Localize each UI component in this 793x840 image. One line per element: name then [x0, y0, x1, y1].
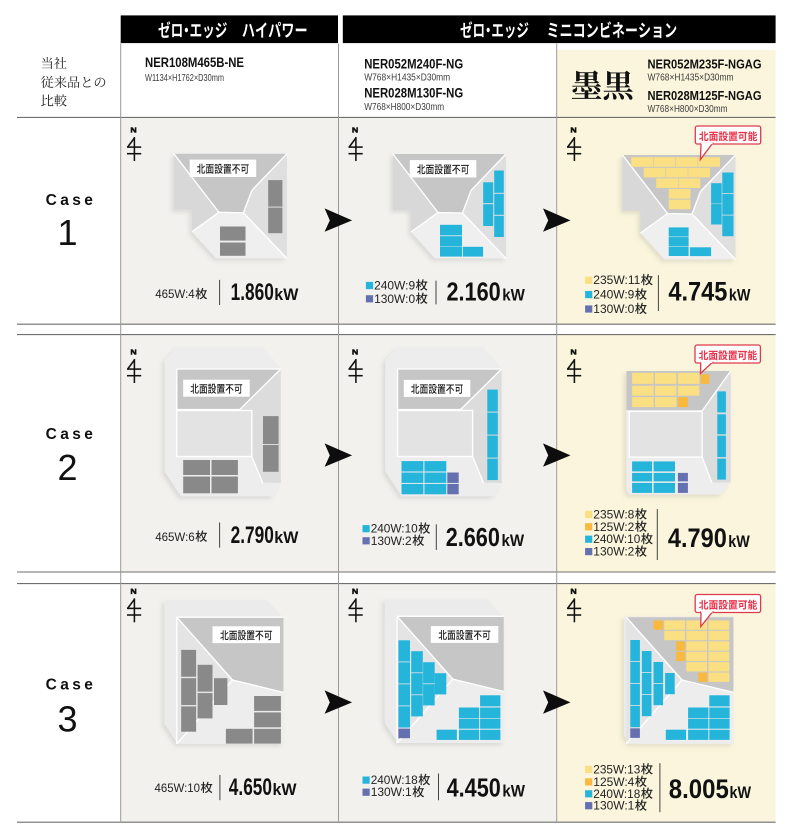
svg-text:Case: Case — [46, 676, 97, 693]
svg-text:NER108M465B-NE: NER108M465B-NE — [145, 55, 244, 70]
svg-text:2: 2 — [57, 447, 77, 488]
svg-text:NER028M130F-NG: NER028M130F-NG — [364, 86, 463, 101]
svg-text:W768×H1435×D30mm: W768×H1435×D30mm — [364, 72, 450, 83]
svg-text:kW: kW — [729, 286, 751, 305]
svg-text:4.650: 4.650 — [229, 774, 272, 801]
svg-text:kW: kW — [728, 532, 750, 551]
svg-text:1: 1 — [57, 212, 77, 253]
svg-text:240W:9: 240W:9 — [593, 288, 634, 302]
svg-text:130W:0: 130W:0 — [593, 302, 634, 316]
svg-text:4.450: 4.450 — [447, 773, 501, 803]
svg-text:130W:2: 130W:2 — [371, 534, 412, 548]
svg-text:kW: kW — [274, 528, 299, 547]
svg-text:2.660: 2.660 — [446, 522, 500, 552]
svg-text:3: 3 — [57, 699, 77, 740]
svg-text:2.160: 2.160 — [447, 276, 501, 306]
svg-text:kW: kW — [502, 285, 525, 304]
svg-text:8.005: 8.005 — [669, 774, 729, 804]
svg-text:kW: kW — [730, 783, 752, 802]
svg-text:2.790: 2.790 — [231, 522, 274, 549]
svg-text:NER028M125F-NGAG: NER028M125F-NGAG — [648, 88, 762, 103]
svg-text:kW: kW — [502, 782, 525, 801]
svg-text:kW: kW — [502, 531, 525, 550]
svg-text:W768×H1435×D30mm: W768×H1435×D30mm — [648, 72, 734, 83]
svg-text:kW: kW — [273, 780, 298, 799]
svg-text:130W:2: 130W:2 — [593, 545, 634, 559]
svg-text:130W:1: 130W:1 — [593, 799, 634, 813]
svg-text:130W:1: 130W:1 — [371, 785, 412, 799]
svg-text:1.860: 1.860 — [231, 279, 274, 306]
svg-text:Case: Case — [46, 426, 97, 443]
svg-text:465W:6: 465W:6 — [155, 530, 195, 544]
svg-text:NER052M240F-NG: NER052M240F-NG — [364, 56, 463, 71]
svg-text:Case: Case — [46, 192, 97, 209]
svg-text:W768×H800×D30mm: W768×H800×D30mm — [364, 102, 444, 113]
svg-text:4.745: 4.745 — [668, 277, 727, 307]
svg-text:kW: kW — [274, 285, 299, 304]
svg-text:W768×H800×D30mm: W768×H800×D30mm — [648, 104, 728, 115]
svg-text:235W:11: 235W:11 — [593, 273, 640, 287]
svg-text:465W:4: 465W:4 — [155, 287, 195, 301]
svg-text:240W:9: 240W:9 — [374, 279, 415, 293]
svg-text:W1134×H1762×D30mm: W1134×H1762×D30mm — [145, 73, 224, 84]
svg-text:465W:10: 465W:10 — [155, 781, 201, 795]
svg-text:NER052M235F-NGAG: NER052M235F-NGAG — [648, 56, 762, 71]
svg-text:130W:0: 130W:0 — [374, 292, 415, 306]
svg-text:4.790: 4.790 — [668, 523, 727, 553]
